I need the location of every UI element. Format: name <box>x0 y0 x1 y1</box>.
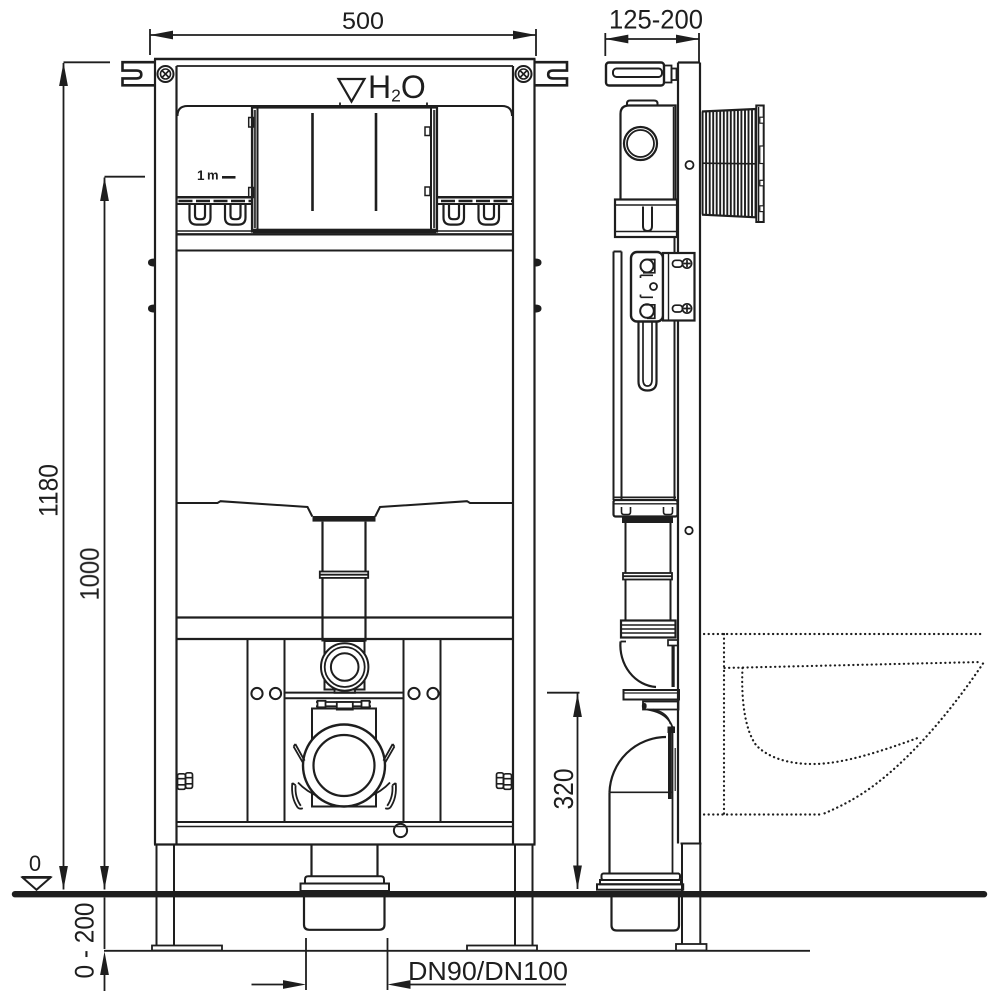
svg-text:1180: 1180 <box>34 464 64 517</box>
svg-text:m: m <box>207 168 219 183</box>
svg-text:1: 1 <box>197 168 205 183</box>
svg-text:0 - 200: 0 - 200 <box>70 903 100 979</box>
svg-text:500: 500 <box>342 8 384 35</box>
svg-text:320: 320 <box>548 769 579 810</box>
svg-text:DN90/DN100: DN90/DN100 <box>408 958 568 986</box>
svg-text:125-200: 125-200 <box>609 5 703 35</box>
svg-text:1000: 1000 <box>75 548 105 601</box>
svg-text:0: 0 <box>29 851 41 876</box>
